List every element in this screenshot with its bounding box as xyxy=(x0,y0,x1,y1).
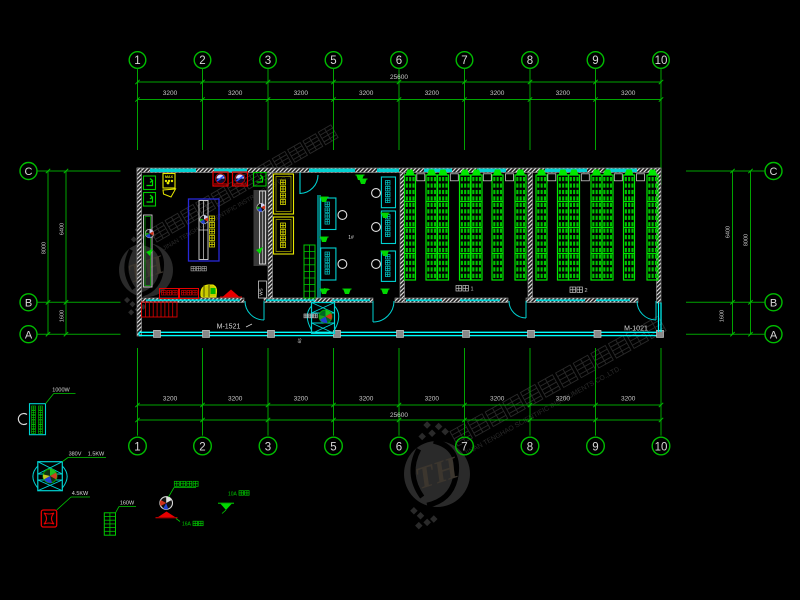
svg-text:160W: 160W xyxy=(120,501,135,507)
svg-text:5: 5 xyxy=(330,441,336,453)
svg-text:1600: 1600 xyxy=(720,310,726,322)
svg-text:MAX: MAX xyxy=(165,175,174,179)
svg-text:6: 6 xyxy=(396,55,402,67)
svg-text:8000: 8000 xyxy=(42,242,48,254)
svg-text:C: C xyxy=(25,166,33,178)
svg-text:6: 6 xyxy=(396,441,402,453)
svg-text:10: 10 xyxy=(655,441,668,453)
svg-text:B: B xyxy=(770,298,777,310)
svg-text:1: 1 xyxy=(134,55,140,67)
svg-text:9: 9 xyxy=(592,441,598,453)
svg-text:3200: 3200 xyxy=(163,396,178,403)
svg-text:25600: 25600 xyxy=(390,74,408,81)
svg-text:3: 3 xyxy=(265,441,271,453)
svg-text:7: 7 xyxy=(461,441,467,453)
svg-text:2: 2 xyxy=(584,288,587,294)
svg-text:3200: 3200 xyxy=(228,396,243,403)
svg-text:25600: 25600 xyxy=(390,412,408,419)
svg-text:3200: 3200 xyxy=(359,396,374,403)
svg-text:2: 2 xyxy=(199,55,205,67)
svg-text:3200: 3200 xyxy=(425,90,440,97)
svg-text:16A: 16A xyxy=(182,522,192,528)
svg-text:3200: 3200 xyxy=(556,90,571,97)
svg-text:8000: 8000 xyxy=(744,234,750,246)
svg-text:6400: 6400 xyxy=(60,223,66,235)
svg-text:5: 5 xyxy=(330,55,336,67)
svg-text:3200: 3200 xyxy=(294,90,309,97)
svg-text:10A: 10A xyxy=(228,491,238,497)
svg-text:3200: 3200 xyxy=(621,396,636,403)
svg-text:8: 8 xyxy=(527,55,533,67)
svg-text:3200: 3200 xyxy=(425,396,440,403)
svg-text:9: 9 xyxy=(592,55,598,67)
svg-text:M-1521: M-1521 xyxy=(217,324,241,331)
svg-text:3200: 3200 xyxy=(621,90,636,97)
svg-text:2: 2 xyxy=(199,441,205,453)
svg-text:4.5KW: 4.5KW xyxy=(72,491,89,497)
svg-text:8: 8 xyxy=(527,441,533,453)
svg-text:3200: 3200 xyxy=(556,396,571,403)
svg-text:3: 3 xyxy=(265,55,271,67)
svg-text:1: 1 xyxy=(470,287,473,293)
svg-text:10: 10 xyxy=(655,55,668,67)
svg-text:3200: 3200 xyxy=(294,396,309,403)
svg-text:7: 7 xyxy=(461,55,467,67)
svg-text:1#: 1# xyxy=(348,235,354,241)
svg-text:B: B xyxy=(25,298,32,310)
svg-text:1000W: 1000W xyxy=(52,388,70,394)
svg-text:WS: WS xyxy=(259,288,264,295)
svg-text:6400: 6400 xyxy=(726,226,732,238)
svg-text:M-1021: M-1021 xyxy=(624,326,648,333)
svg-text:380V: 380V xyxy=(69,452,82,458)
svg-text:A: A xyxy=(25,329,33,341)
svg-text:A: A xyxy=(770,329,778,341)
svg-text:3200: 3200 xyxy=(163,90,178,97)
svg-text:1.5KW: 1.5KW xyxy=(88,452,105,458)
svg-text:C: C xyxy=(770,166,778,178)
svg-text:3200: 3200 xyxy=(490,90,505,97)
svg-text:3200: 3200 xyxy=(490,396,505,403)
svg-text:1: 1 xyxy=(134,441,140,453)
svg-text:3200: 3200 xyxy=(359,90,374,97)
svg-text:1600: 1600 xyxy=(60,310,66,322)
svg-text:3200: 3200 xyxy=(228,90,243,97)
